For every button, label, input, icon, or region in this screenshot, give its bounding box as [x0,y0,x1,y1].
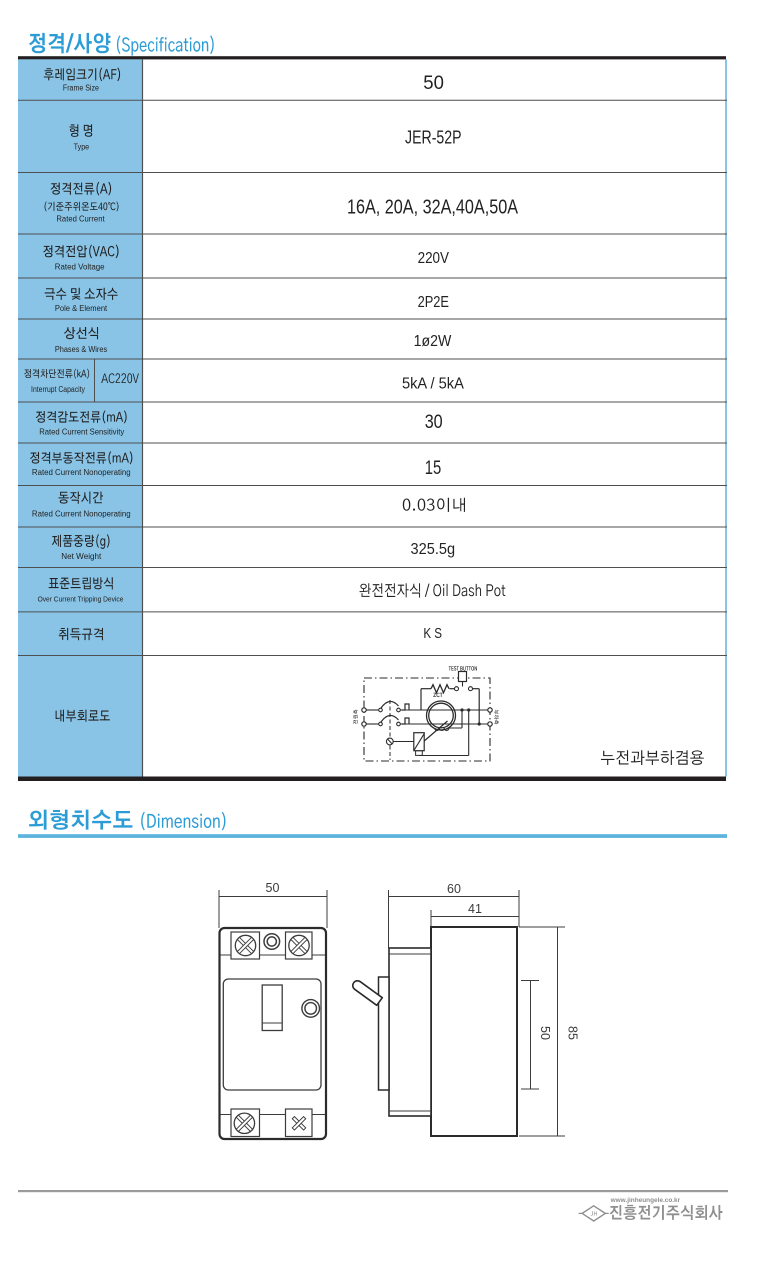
svg-text:50: 50 [538,1026,552,1040]
svg-text:www.jinheungele.co.kr: www.jinheungele.co.kr [610,1197,681,1204]
svg-text:Over Current Tripping Device: Over Current Tripping Device [38,594,124,603]
svg-text:Rated Current Nonoperating: Rated Current Nonoperating [32,509,131,518]
svg-text:1ø2W: 1ø2W [414,333,452,350]
svg-text:50: 50 [266,881,280,895]
svg-text:Frame Size: Frame Size [63,84,99,93]
svg-text:JER-52P: JER-52P [405,127,462,148]
svg-text:Rated Voltage: Rated Voltage [55,262,105,271]
svg-text:Phases & Wires: Phases & Wires [55,345,107,354]
svg-text:Type: Type [74,143,90,152]
svg-text:Net Weight: Net Weight [61,552,102,561]
svg-text:41: 41 [468,902,482,916]
svg-text:220V: 220V [418,250,450,267]
svg-text:K S: K S [423,625,442,642]
svg-text:85: 85 [566,1026,580,1040]
svg-text:Rated Current Sensitivity: Rated Current Sensitivity [39,428,124,437]
svg-text:Rated Current Nonoperating: Rated Current Nonoperating [32,468,131,477]
svg-text:Pole & Element: Pole & Element [55,304,108,313]
svg-text:16A, 20A, 32A,40A,50A: 16A, 20A, 32A,40A,50A [347,197,519,219]
svg-text:30: 30 [425,411,443,433]
svg-text:5kA / 5kA: 5kA / 5kA [402,376,465,393]
svg-text:325.5g: 325.5g [411,541,456,558]
svg-text:50: 50 [423,72,444,94]
svg-text:Interrupt Capacity: Interrupt Capacity [31,385,85,394]
svg-text:15: 15 [425,457,442,479]
svg-text:2P2E: 2P2E [418,294,449,311]
svg-text:60: 60 [447,882,461,896]
svg-text:Rated Current: Rated Current [56,215,105,224]
